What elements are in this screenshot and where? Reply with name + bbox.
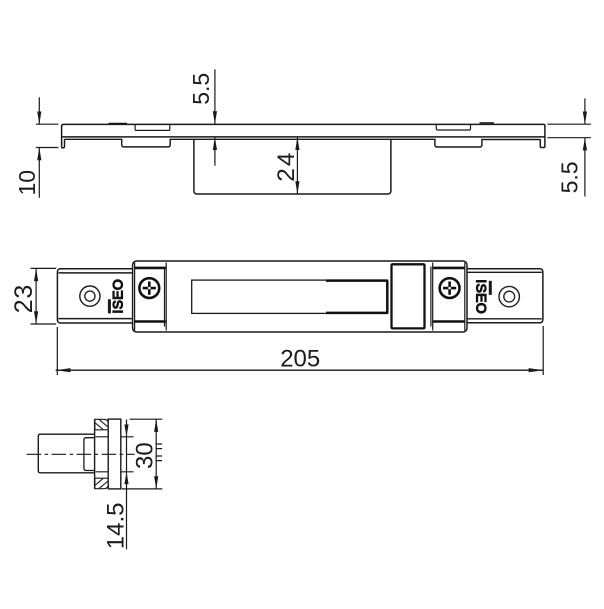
svg-text:30: 30 [131,442,158,469]
svg-text:10: 10 [14,170,40,196]
svg-text:5.5: 5.5 [188,73,214,105]
svg-text:14.5: 14.5 [103,502,130,549]
svg-text:205: 205 [280,346,320,373]
svg-text:5.5: 5.5 [557,161,583,193]
svg-text:23: 23 [10,284,38,313]
svg-text:ISEO: ISEO [110,279,126,314]
svg-text:ISEO: ISEO [474,279,490,314]
svg-text:24: 24 [273,151,300,182]
